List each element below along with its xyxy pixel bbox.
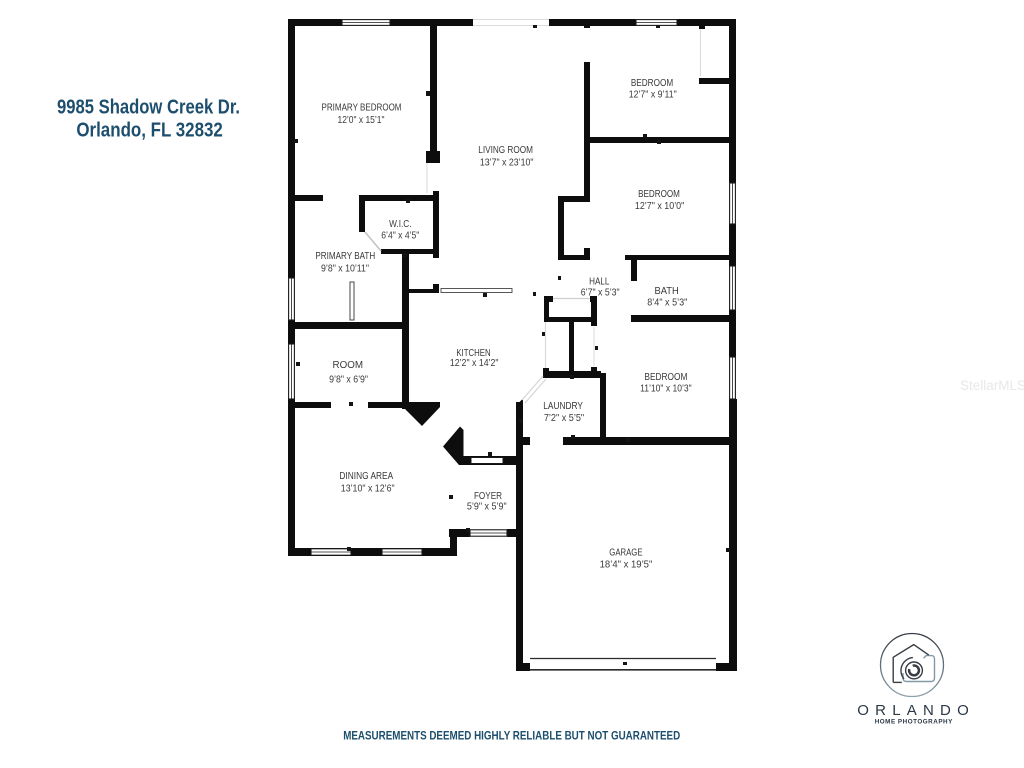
svg-text:FOYER: FOYER (474, 491, 502, 502)
svg-text:12’2" x 14’2": 12’2" x 14’2" (450, 358, 499, 369)
svg-text:12’0" x 15’1": 12’0" x 15’1" (338, 115, 385, 126)
svg-text:PRIMARY BEDROOM: PRIMARY BEDROOM (322, 103, 402, 114)
svg-text:7’2" x 5’5": 7’2" x 5’5" (544, 413, 585, 424)
svg-text:ROOM: ROOM (333, 360, 364, 371)
svg-text:12’7" x 10’0": 12’7" x 10’0" (635, 201, 685, 212)
svg-text:LAUNDRY: LAUNDRY (543, 401, 583, 412)
svg-text:6’4" x 4’5": 6’4" x 4’5" (381, 231, 419, 242)
svg-text:BEDROOM: BEDROOM (631, 78, 673, 89)
svg-text:HOME PHOTOGRAPHY: HOME PHOTOGRAPHY (875, 719, 953, 726)
svg-text:BATH: BATH (654, 286, 678, 297)
svg-text:PRIMARY BATH: PRIMARY BATH (315, 251, 375, 262)
svg-text:13’10" x 12’6": 13’10" x 12’6" (341, 484, 395, 495)
svg-text:9’8" x 6’9": 9’8" x 6’9" (329, 375, 368, 386)
svg-text:LIVING ROOM: LIVING ROOM (478, 145, 533, 156)
svg-text:Orlando, FL 32832: Orlando, FL 32832 (76, 118, 223, 141)
svg-text:MEASUREMENTS DEEMED HIGHLY REL: MEASUREMENTS DEEMED HIGHLY RELIABLE BUT … (343, 729, 680, 743)
svg-text:5’9" x 5’9": 5’9" x 5’9" (467, 502, 507, 513)
svg-text:HALL: HALL (589, 277, 610, 288)
svg-text:8’4" x 5’3": 8’4" x 5’3" (647, 298, 687, 309)
svg-text:9’8" x 10’11": 9’8" x 10’11" (321, 264, 369, 275)
svg-text:W.I.C.: W.I.C. (389, 219, 411, 230)
svg-text:GARAGE: GARAGE (609, 548, 642, 559)
svg-text:11’10" x 10’3": 11’10" x 10’3" (640, 384, 692, 395)
svg-text:StellarMLS: StellarMLS (960, 378, 1024, 393)
svg-text:18’4" x 19’5": 18’4" x 19’5" (600, 560, 653, 571)
svg-text:12’7" x 9’11": 12’7" x 9’11" (629, 89, 677, 100)
svg-text:9985 Shadow Creek Dr.: 9985 Shadow Creek Dr. (57, 95, 240, 118)
svg-text:ORLANDO: ORLANDO (857, 702, 969, 719)
svg-text:BEDROOM: BEDROOM (638, 189, 680, 200)
svg-text:BEDROOM: BEDROOM (644, 372, 687, 383)
svg-text:DINING AREA: DINING AREA (339, 471, 393, 482)
svg-text:6’7" x 5’3": 6’7" x 5’3" (581, 288, 620, 299)
svg-text:13’7" x 23’10": 13’7" x 23’10" (480, 157, 534, 168)
